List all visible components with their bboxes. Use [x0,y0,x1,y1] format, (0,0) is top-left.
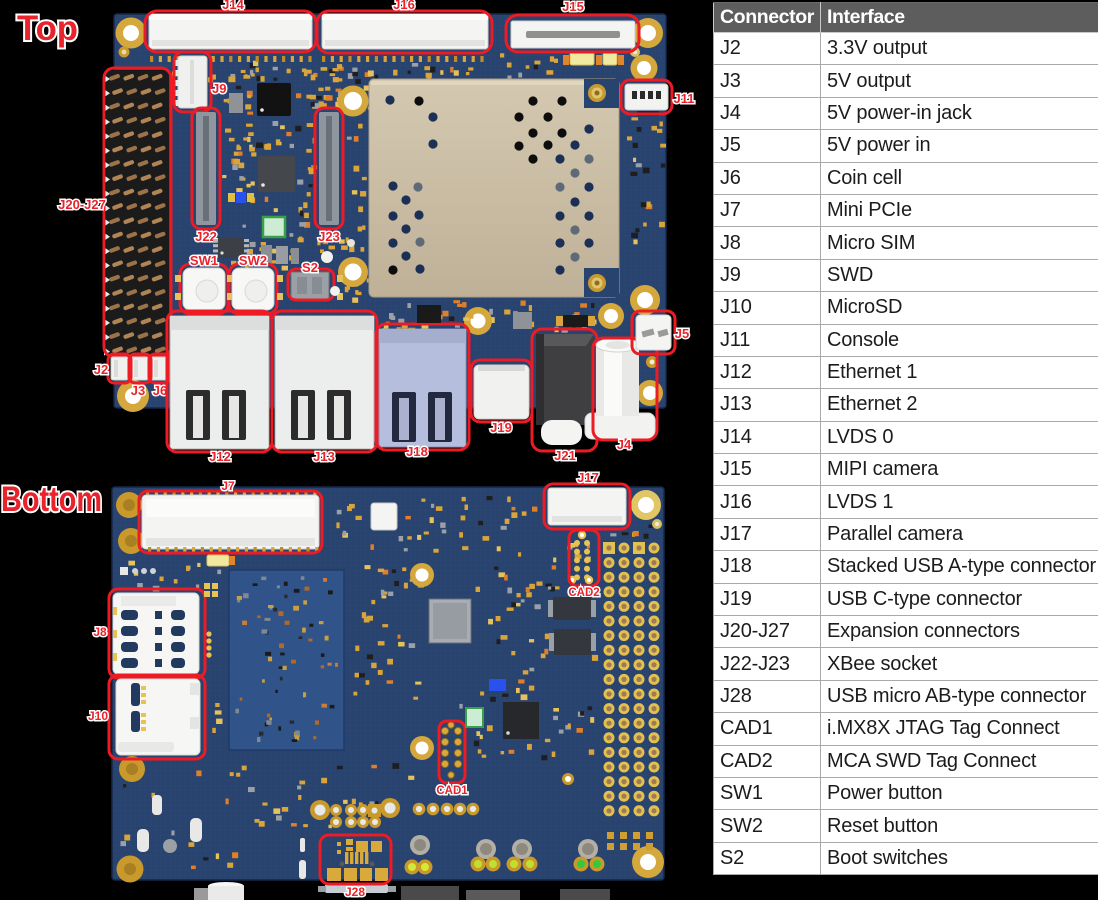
svg-text:J6: J6 [153,383,167,398]
svg-text:J14: J14 [222,0,244,12]
svg-text:S2: S2 [302,260,318,275]
svg-text:J10: J10 [88,709,108,723]
svg-text:Bottom: Bottom [1,480,102,519]
svg-text:J7: J7 [221,479,235,493]
svg-text:J16: J16 [393,0,415,12]
svg-text:J18: J18 [406,444,428,459]
svg-text:J20-J27: J20-J27 [58,197,106,212]
svg-text:J12: J12 [209,449,231,464]
svg-text:J15: J15 [562,0,584,14]
svg-text:J4: J4 [617,437,632,452]
svg-text:J28: J28 [345,885,365,899]
svg-text:SW1: SW1 [190,253,218,268]
svg-text:J3: J3 [131,383,145,398]
svg-text:J2: J2 [94,362,108,377]
svg-text:J23: J23 [318,229,340,244]
svg-text:Top: Top [17,9,78,48]
svg-text:J9: J9 [212,81,226,96]
svg-text:J11: J11 [674,91,695,106]
svg-text:J21: J21 [554,448,576,463]
svg-text:CAD1: CAD1 [436,785,468,797]
svg-text:J13: J13 [313,449,335,464]
svg-text:J5: J5 [675,326,689,341]
svg-text:J8: J8 [93,625,107,639]
svg-text:J19: J19 [490,420,512,435]
svg-text:SW2: SW2 [239,253,267,268]
svg-text:J17: J17 [577,470,599,485]
